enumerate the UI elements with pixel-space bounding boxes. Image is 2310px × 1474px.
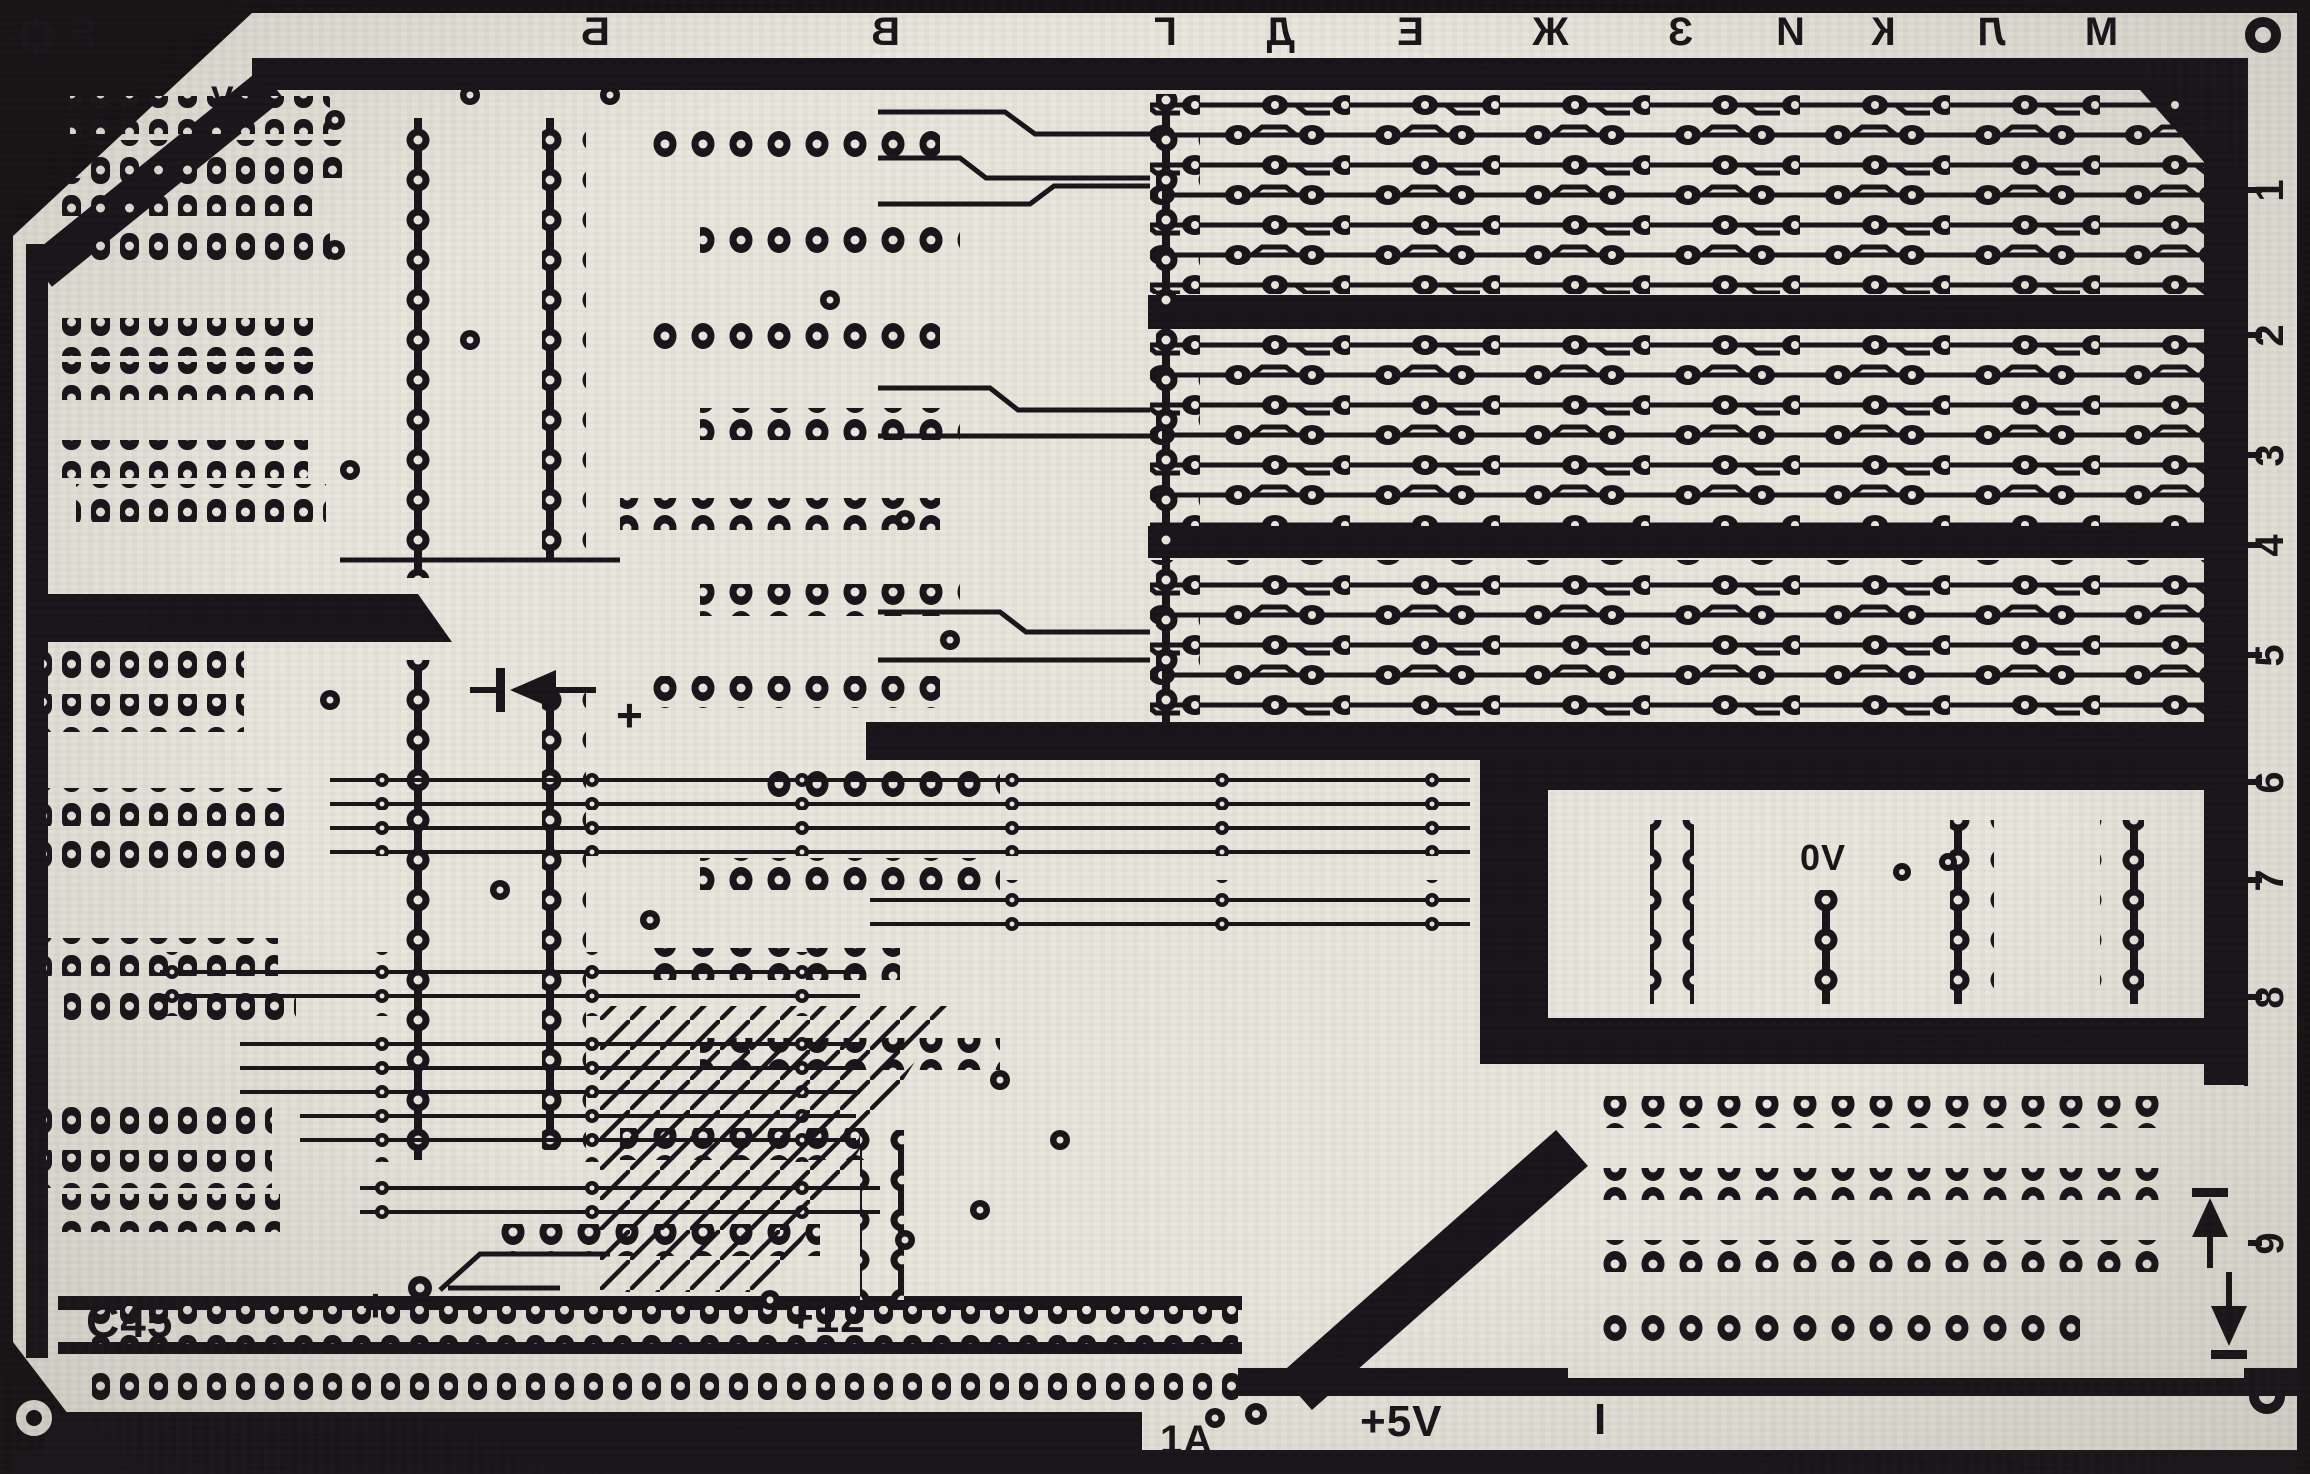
- polarity-plus-label: +: [616, 692, 644, 738]
- edge-number: 2: [2250, 313, 2294, 357]
- edge-number: 4: [2250, 523, 2294, 567]
- rating-label-1a: 1A: [1160, 1420, 1213, 1460]
- polarity-plus-label: +: [362, 1282, 390, 1328]
- edge-letter: Д: [1250, 12, 1310, 52]
- edge-letter: З: [1650, 12, 1710, 52]
- edge-letter: В: [855, 12, 915, 52]
- edge-number: 3: [2250, 433, 2294, 477]
- edge-letter: Ж: [1520, 12, 1580, 52]
- edge-number: 5: [2250, 633, 2294, 677]
- edge-number: 6: [2250, 760, 2294, 804]
- edge-number: 8: [2250, 975, 2294, 1019]
- edge-letter: Г: [1135, 12, 1195, 52]
- net-label-plus5v: +5V: [1360, 1400, 1443, 1444]
- edge-number: 1: [2250, 168, 2294, 212]
- corner-letter: Я: [52, 12, 112, 52]
- edge-letter: М: [2071, 12, 2131, 52]
- memory-array-region: [1150, 94, 2204, 722]
- net-label-0v-top: 0V: [210, 82, 254, 116]
- edge-number: 7: [2250, 858, 2294, 902]
- edge-letter: И: [1760, 12, 1820, 52]
- edge-number: 9: [2250, 1221, 2294, 1265]
- edge-letter: Л: [1961, 12, 2021, 52]
- pcb-artwork-scan: Я Б В Г Д Е Ж З И К Л М 1 2 3 4 5 6 7 8 …: [0, 0, 2310, 1474]
- board-artwork: [0, 0, 2310, 1474]
- edge-letter: К: [1853, 12, 1913, 52]
- edge-letter: Б: [565, 12, 625, 52]
- component-label-c45: C45: [86, 1298, 173, 1344]
- net-label-plus12: +12: [788, 1296, 866, 1340]
- index-bar-label: I: [1594, 1398, 1607, 1442]
- net-label-0v-mid: 0V: [1800, 840, 1846, 876]
- edge-letter: Е: [1380, 12, 1440, 52]
